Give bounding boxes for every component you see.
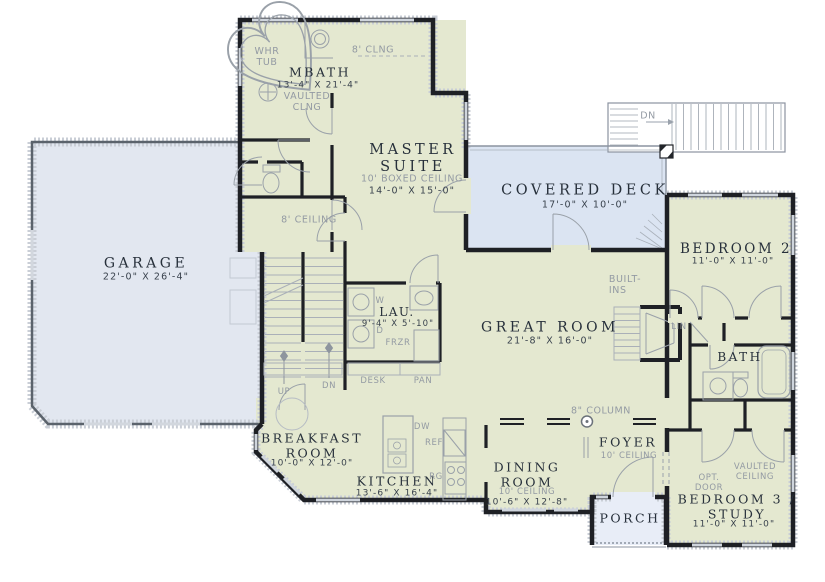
north-checker-marker [660, 145, 673, 158]
column-symbol [582, 416, 593, 427]
whirlpool-tub-label: WHRTUB [255, 46, 280, 68]
bedroom3-ceiling-note: VAULTEDCEILING [734, 462, 776, 482]
stairs-up-label: UP [278, 387, 291, 397]
garage-dims: 22'-0" X 26'-4" [103, 271, 189, 282]
deck-stairs-dn-label: DN [640, 110, 656, 121]
dishwasher-label: DW [414, 422, 430, 432]
great-room-dims: 21'-8" X 16'-0" [507, 335, 593, 346]
refrigerator-label: REF [425, 438, 443, 448]
foyer-ceiling-note: 10' CEILING [601, 451, 657, 461]
bedroom2-room-label: BEDROOM 2 [680, 242, 792, 258]
dining-room-label: DININGROOM [494, 460, 561, 490]
master-dims: 14'-0" X 15'-0" [369, 185, 455, 196]
desk-label: DESK [360, 376, 385, 386]
closet-ceiling-note: 8' CLNG [352, 44, 394, 55]
kitchen-room-label: KITCHEN [357, 475, 438, 490]
bedroom3-dims: 11'-0" X 11'-0" [693, 520, 775, 531]
pantry-label: PAN [414, 376, 433, 386]
dryer-label: D [376, 326, 383, 336]
stairs-dn-label: DN [322, 381, 336, 391]
bedroom2-dims: 11'-0" X 11'-0" [692, 257, 774, 268]
kitchen-dims: 13'-6" X 16'-4" [356, 489, 438, 500]
floor-plan-page: WHRTUB MBATH 13'-4" X 21'-4" VAULTEDCLNG… [0, 0, 825, 582]
laundry-dims: 9'-4" X 5'-10" [362, 319, 434, 329]
dining-ceiling-note: 10' CEILING [499, 487, 555, 497]
mbath-pedestal-sink [259, 83, 277, 101]
built-ins-label: BUILT-INS [609, 274, 641, 296]
master-ceiling-note: 10' BOXED CEILING [361, 173, 463, 184]
bedroom3-room-label: BEDROOM 3 /STUDY [678, 492, 797, 522]
optional-door-label: OPT.DOOR [695, 473, 723, 493]
covered-deck-room-label: COVERED DECK [501, 182, 669, 199]
great-room-label: GREAT ROOM [481, 320, 619, 337]
range-label: RG [429, 472, 443, 482]
mbath-ceiling-note: VAULTEDCLNG [284, 91, 331, 113]
mbath-room-label: MBATH [289, 66, 351, 81]
linen-label: LIN [671, 322, 686, 332]
freezer-label: FRZR [386, 338, 411, 348]
garage-area [32, 142, 262, 424]
washer-label: W [375, 296, 384, 306]
column-label: 8" COLUMN [571, 405, 631, 416]
breakfast-dims: 10'-0" X 12'-0" [271, 459, 353, 470]
covered-deck-dims: 17'-0" X 10'-0" [542, 199, 628, 210]
front-door-opening [611, 492, 655, 502]
breakfast-room-label: BREAKFASTROOM [261, 431, 363, 461]
garage-room-label: GARAGE [104, 256, 188, 273]
laundry-room-label: LAU. [379, 305, 414, 319]
hall-ceiling-note: 8' CEILING [281, 214, 337, 225]
master-suite-room-label: MASTERSUITE [369, 142, 456, 176]
foyer-room-label: FOYER [599, 436, 657, 451]
dining-dims: 10'-6" X 12'-8" [486, 498, 568, 509]
porch-room-label: PORCH [599, 512, 660, 527]
mbath-dims: 13'-4" X 21'-4" [277, 81, 359, 92]
bath-room-label: BATH [717, 350, 762, 364]
